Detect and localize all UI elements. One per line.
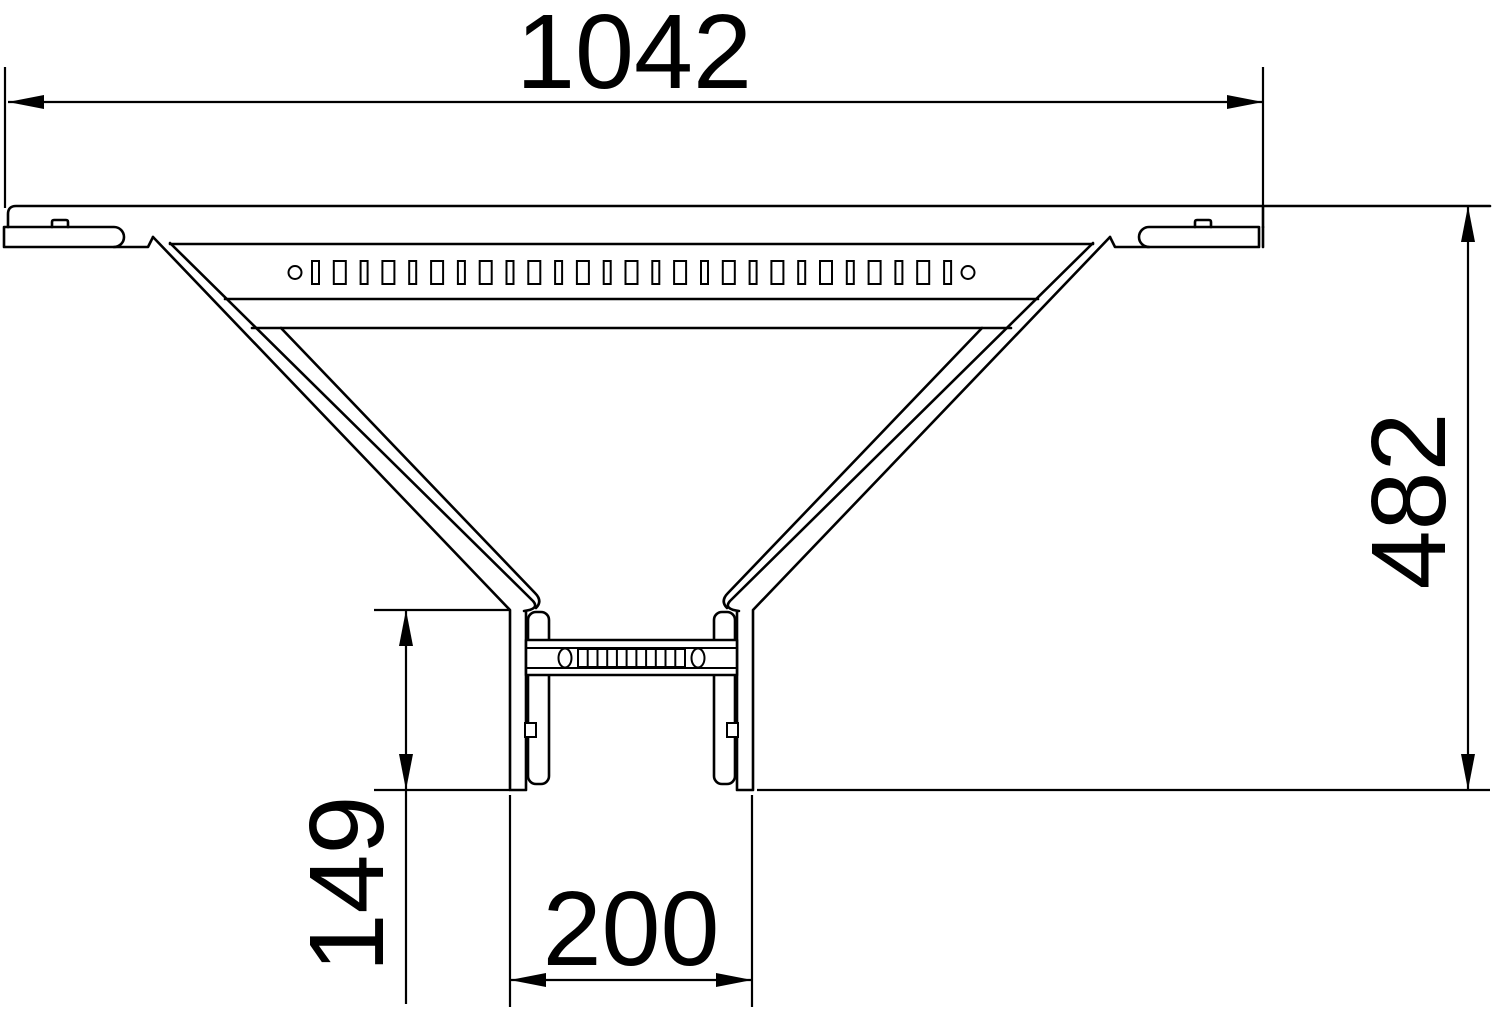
dim-label-branch-width: 200 [543,870,720,988]
arrow-left-icon [8,95,44,109]
arrow-right-icon [716,973,752,987]
top-rail-perforation-slots [289,261,975,284]
rail-slot [409,261,416,284]
rail-slot [604,261,611,284]
dim-overall-depth: 482 [757,206,1490,790]
rail-slot [652,261,659,284]
rail-slot [750,261,757,284]
rail-slot [869,261,881,284]
rail-slot [917,261,929,284]
left-end-coupler [4,227,124,247]
dimension-annotations: 1042 482 149 200 [5,0,1490,1007]
branch-right-coupler [714,612,735,784]
rail-slot [674,261,686,284]
right-end-coupler [1139,227,1259,247]
rail-slot [847,261,854,284]
dim-label-branch-stub-length: 149 [288,796,406,973]
rail-slot [626,261,638,284]
rail-slot [507,261,514,284]
rail-end-hole [289,266,302,279]
cable-ladder-tee-technical-drawing: 1042 482 149 200 [0,0,1500,1012]
arrow-right-icon [1227,95,1263,109]
rail-slot [944,261,951,284]
rail-slot [382,261,394,284]
right-coupler-notch [727,723,738,737]
arrow-up-icon [399,610,413,646]
rail-slot [312,261,319,284]
rail-slot [771,261,783,284]
rail-slot [701,261,708,284]
arrow-left-icon [510,973,546,987]
branch-rung [526,640,737,675]
rail-slot [458,261,465,284]
rail-slot [334,261,346,284]
branch-left-coupler [528,612,549,784]
rail-slot [798,261,805,284]
rail-slot [431,261,443,284]
drawing-canvas: 1042 482 149 200 [0,0,1500,1012]
rail-slot [820,261,832,284]
rail-slot [895,261,902,284]
right-diagonal-outer [737,237,1110,790]
dim-branch-width: 200 [510,795,752,1007]
part-outline [4,206,1490,790]
left-diagonal-outer [153,237,526,790]
rail-slot [577,261,589,284]
arrow-down-icon [399,754,413,790]
dim-overall-width: 1042 [5,0,1263,208]
left-coupler-notch [525,723,536,737]
right-diagonal-flange [724,328,982,608]
rail-slot [723,261,735,284]
arrow-up-icon [1461,206,1475,242]
main-rail-top-edge [8,206,1490,227]
arrow-down-icon [1461,754,1475,790]
rail-slot [528,261,540,284]
dim-label-overall-width: 1042 [516,0,752,111]
left-diagonal-flange [281,328,539,608]
rail-end-hole [962,266,975,279]
dim-label-overall-depth: 482 [1350,413,1468,590]
rail-slot [480,261,492,284]
dim-branch-stub-length: 149 [288,610,510,1004]
rail-slot [555,261,562,284]
rail-slot [361,261,368,284]
